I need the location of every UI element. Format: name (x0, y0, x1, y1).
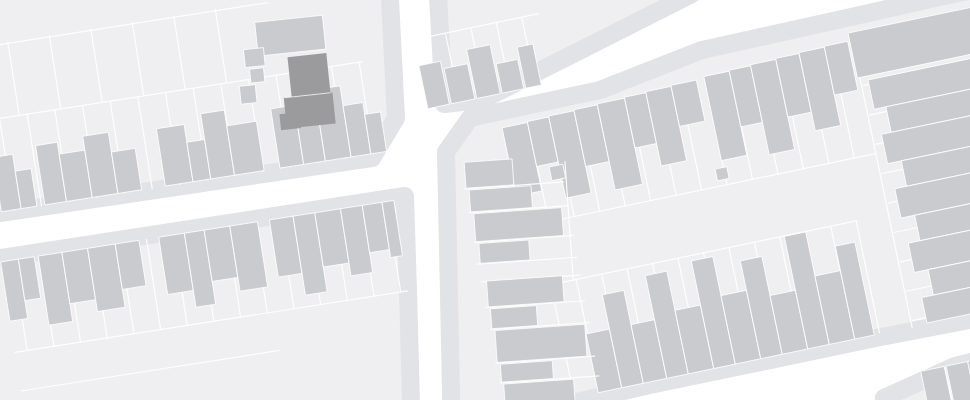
buildings-west-row-shape (500, 361, 553, 383)
buildings-west-row-shape (479, 240, 530, 263)
buildings-right-shape (549, 164, 566, 181)
buildings-west-row-shape (490, 306, 537, 329)
map-viewport[interactable] (0, 0, 970, 400)
buildings-right-shape (715, 167, 729, 181)
map-canvas[interactable] (0, 0, 970, 400)
building-footprint (250, 68, 265, 83)
buildings-west-row-shape (486, 276, 564, 307)
buildings-west-row-shape (474, 208, 564, 242)
building-footprint (243, 48, 265, 68)
building-footprint (239, 85, 257, 105)
buildings-west-row-shape (464, 159, 514, 188)
selected-building[interactable] (279, 112, 301, 130)
building-footprint (255, 15, 326, 56)
buildings-west-row-shape (495, 324, 587, 362)
selected-building[interactable] (287, 53, 330, 97)
buildings-west-row-shape (469, 186, 532, 212)
